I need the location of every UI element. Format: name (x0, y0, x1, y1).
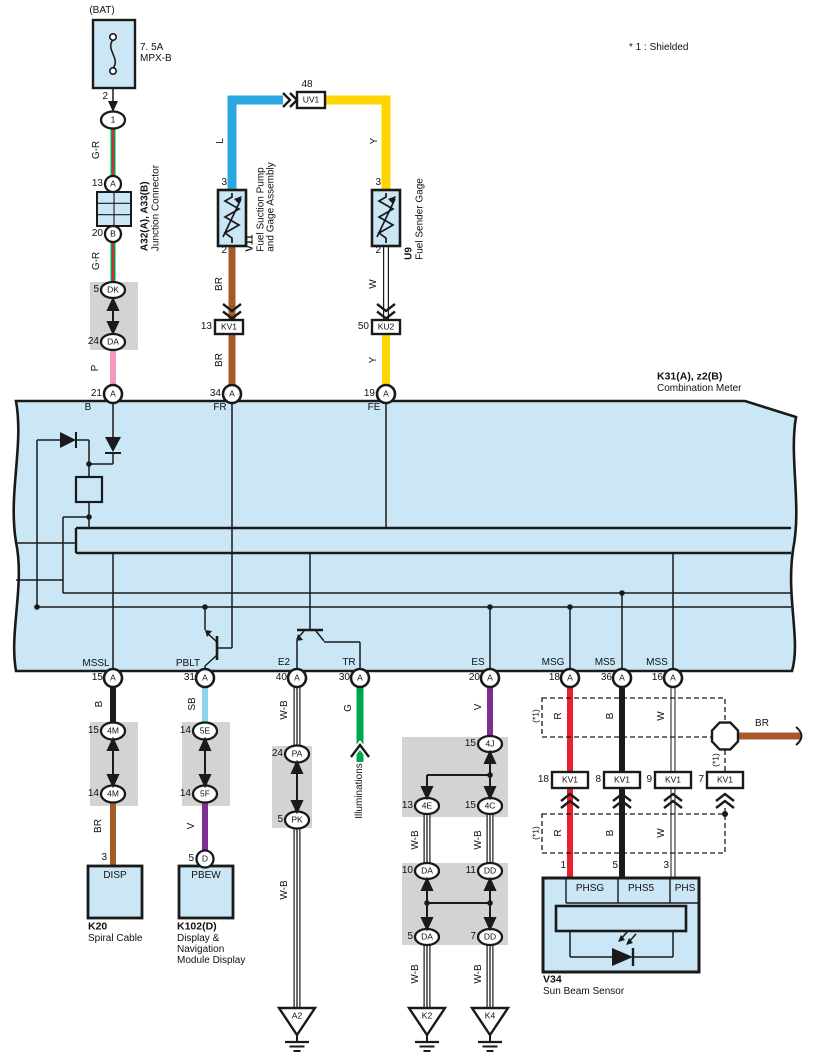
ground-label: A2 (292, 1012, 302, 1021)
pin-number: 15 (465, 739, 476, 750)
pin-number: 13 (201, 322, 212, 333)
wire-color-label: W (657, 711, 668, 720)
shield-junction-dot (722, 811, 728, 817)
wire-color-label: L (216, 138, 227, 144)
pin-number: 8 (595, 775, 601, 786)
pin-number: 18 (549, 673, 560, 684)
wire-color-label: Y (369, 357, 380, 364)
wire-color-label: BR (215, 277, 226, 291)
fuse-name-label: MPX-B (140, 54, 172, 65)
pin-number: 5 (277, 815, 283, 826)
pin-number: 48 (301, 80, 312, 91)
meter-pin-name: ES (471, 658, 484, 669)
pin-number: 14 (88, 789, 99, 800)
pin-number: 2 (375, 246, 381, 257)
connector-code: PA (292, 750, 303, 759)
component-name: Spiral Cable (88, 934, 142, 945)
combination-meter-body (14, 401, 797, 671)
connector-code: DD (484, 933, 496, 942)
meter-pin-name: MSS (646, 658, 668, 669)
connector-code: A (110, 180, 116, 189)
pin-number: 24 (272, 749, 283, 760)
wire-color-label: W (657, 828, 668, 837)
connector-code: A (619, 674, 625, 683)
pin-number: 21 (91, 389, 102, 400)
connector-code: A (567, 674, 573, 683)
connector-code: A (670, 674, 676, 683)
component-name: and Gage Assembly (265, 162, 276, 252)
pin-number: 7 (698, 775, 704, 786)
pin-number: 3 (101, 853, 107, 864)
connector-code: 5E (200, 727, 210, 736)
fuse-box (93, 20, 135, 88)
meter-pin-name: MSSL (82, 659, 109, 670)
shielded-note: * 1 : Shielded (629, 43, 689, 54)
connector-code: KV1 (665, 776, 681, 785)
component-name: Fuel Sender Gage (414, 178, 425, 260)
junction-code: A32(A), A33(B) (140, 181, 151, 251)
junction-connector-label: A32(A), A33(B)Junction Connector (141, 165, 162, 251)
connector-code: 4M (107, 790, 119, 799)
meter-pin-name: TR (342, 658, 355, 669)
wire-color-label: G-R (92, 141, 103, 159)
connector-code: DA (421, 933, 433, 942)
illumination-destination-label: Illuminations (355, 763, 366, 819)
u9-component-label: U9Fuel Sender Gage (405, 178, 426, 260)
connector-code: A (487, 674, 493, 683)
component-name: Navigation (177, 945, 224, 956)
connector-code: A (110, 390, 116, 399)
connector-code: A (383, 390, 389, 399)
wire-color-label: BR (94, 819, 105, 833)
pin-number: 3 (663, 861, 669, 872)
pin-number: 10 (402, 866, 413, 877)
connector-code: 1 (111, 116, 116, 125)
wire-color-label: W-B (474, 830, 485, 849)
connector-code: KV1 (562, 776, 578, 785)
component-name: Sun Beam Sensor (543, 987, 624, 998)
pin-number: 9 (646, 775, 652, 786)
component-pin-name: PBEW (191, 871, 220, 882)
meter-code: K31(A), z2(B) (657, 371, 722, 382)
pin-number: 15 (92, 673, 103, 684)
component-code: K20 (88, 921, 107, 932)
connector-code: 4J (486, 740, 495, 749)
junction-name: Junction Connector (150, 165, 161, 251)
pin-number: 50 (358, 322, 369, 333)
pin-number: 15 (465, 801, 476, 812)
component-name: Module Display (177, 956, 245, 967)
component-code: K102(D) (177, 921, 217, 932)
component-code: U9 (404, 247, 415, 260)
wire-color-label: BR (215, 353, 226, 367)
wire-color-label: B (606, 713, 617, 720)
connector-code: UV1 (303, 96, 320, 105)
junction-connector-grid (97, 192, 131, 226)
component-name: Display & (177, 934, 219, 945)
pin-number: 30 (339, 673, 350, 684)
component-code: V11 (244, 235, 255, 252)
pin-number: 13 (402, 801, 413, 812)
wiring-diagram-page: * 1 : Shielded (BAT) 7. 5A MPX-B 2 1 G-R… (0, 0, 815, 1063)
pin-number: 20 (469, 673, 480, 684)
connector-code: A (110, 674, 116, 683)
fuse-rating-label: 7. 5A (140, 43, 163, 54)
shield-note-label: (*1) (532, 709, 541, 723)
wire-color-label: V (187, 823, 198, 830)
v11-fuel-pump-box (218, 190, 246, 246)
pin-number: 20 (92, 229, 103, 240)
pin-number: 14 (180, 789, 191, 800)
connector-code: A (357, 674, 363, 683)
connector-code: KU2 (378, 323, 395, 332)
component-pin-name: PHSG (576, 884, 604, 895)
wire-color-label: W-B (280, 880, 291, 899)
wire-color-label: G (344, 704, 355, 712)
connector-code: PK (291, 816, 302, 825)
connector-code: KV1 (717, 776, 733, 785)
ground-label: K4 (485, 1012, 495, 1021)
pin-number: 5 (407, 932, 413, 943)
connector-code: B (110, 230, 116, 239)
connector-code: DA (421, 867, 433, 876)
pin-number: 24 (88, 337, 99, 348)
wire-color-label: V (474, 704, 485, 711)
wiring-graphics (0, 0, 815, 1063)
pin-number: 5 (612, 861, 618, 872)
wire-color-label: W-B (411, 830, 422, 849)
connector-code: DA (107, 338, 119, 347)
shield-note-label: (*1) (712, 753, 721, 767)
connector-code: KV1 (614, 776, 630, 785)
wire-color-label: R (554, 712, 565, 719)
meter-pin-name: MS5 (595, 658, 616, 669)
component-name: Fuel Suction Pump (255, 167, 266, 252)
meter-pin-name: FE (368, 403, 381, 414)
pin-number: 13 (92, 179, 103, 190)
connector-code: A (202, 674, 208, 683)
connector-code: KV1 (221, 323, 237, 332)
pin-number: 14 (180, 726, 191, 737)
pin-number: 3 (221, 178, 227, 189)
pin-number: 3 (375, 178, 381, 189)
wire-color-label: R (554, 829, 565, 836)
wire-color-label: BR (755, 719, 769, 730)
ground-label: K2 (422, 1012, 432, 1021)
connector-code: 4E (422, 802, 432, 811)
pin-number: 5 (188, 854, 194, 865)
wire-color-label: B (606, 830, 617, 837)
meter-pin-name: E2 (278, 658, 290, 669)
meter-pin-name: MSG (542, 658, 565, 669)
connector-code: 4C (485, 802, 496, 811)
pin-number: 2 (221, 246, 227, 257)
pin-number: 40 (276, 673, 287, 684)
wire-color-label: G-R (92, 252, 103, 270)
connector-code: 5F (200, 790, 210, 799)
connector-code: DK (107, 286, 119, 295)
wire-color-label: P (91, 365, 102, 372)
wire-color-label: W-B (411, 964, 422, 983)
wire-color-label: W-B (474, 964, 485, 983)
pin-number: 18 (538, 775, 549, 786)
pin-number: 36 (601, 673, 612, 684)
connector-code: A (294, 674, 300, 683)
component-code: V34 (543, 974, 562, 985)
wire-color-label: SB (188, 697, 199, 710)
pin-number: 1 (560, 861, 566, 872)
wire-color-label: W-B (280, 700, 291, 719)
pin-number: 34 (210, 389, 221, 400)
meter-name: Combination Meter (657, 384, 741, 395)
connector-code: DD (484, 867, 496, 876)
connector-code: D (202, 855, 208, 864)
pin-number: 19 (364, 389, 375, 400)
pin-number: 15 (88, 726, 99, 737)
pin-number: 7 (470, 932, 476, 943)
battery-source-label: (BAT) (89, 6, 114, 17)
wire-color-label: Y (370, 138, 381, 145)
pin-number: 31 (184, 673, 195, 684)
pin-number: 5 (93, 285, 99, 296)
wire-color-label: W (369, 279, 380, 288)
component-pin-name: DISP (103, 871, 126, 882)
u9-fuel-sender-box (372, 190, 400, 246)
meter-pin-name: B (85, 403, 92, 414)
meter-pin-name: PBLT (176, 659, 200, 670)
component-pin-name: PHS (675, 884, 696, 895)
pin-number: 16 (652, 673, 663, 684)
shield-note-label: (*1) (532, 826, 541, 840)
pin-number: 11 (466, 866, 476, 877)
meter-pin-name: FR (213, 403, 226, 414)
shield-octagon-icon (712, 723, 738, 750)
pin-number: 2 (102, 92, 108, 103)
wire-color-label: B (95, 701, 106, 708)
connector-code: 4M (107, 727, 119, 736)
v11-component-label: V11Fuel Suction Pumpand Gage Assembly (245, 162, 277, 252)
component-pin-name: PHS5 (628, 884, 654, 895)
connector-code: A (229, 390, 235, 399)
